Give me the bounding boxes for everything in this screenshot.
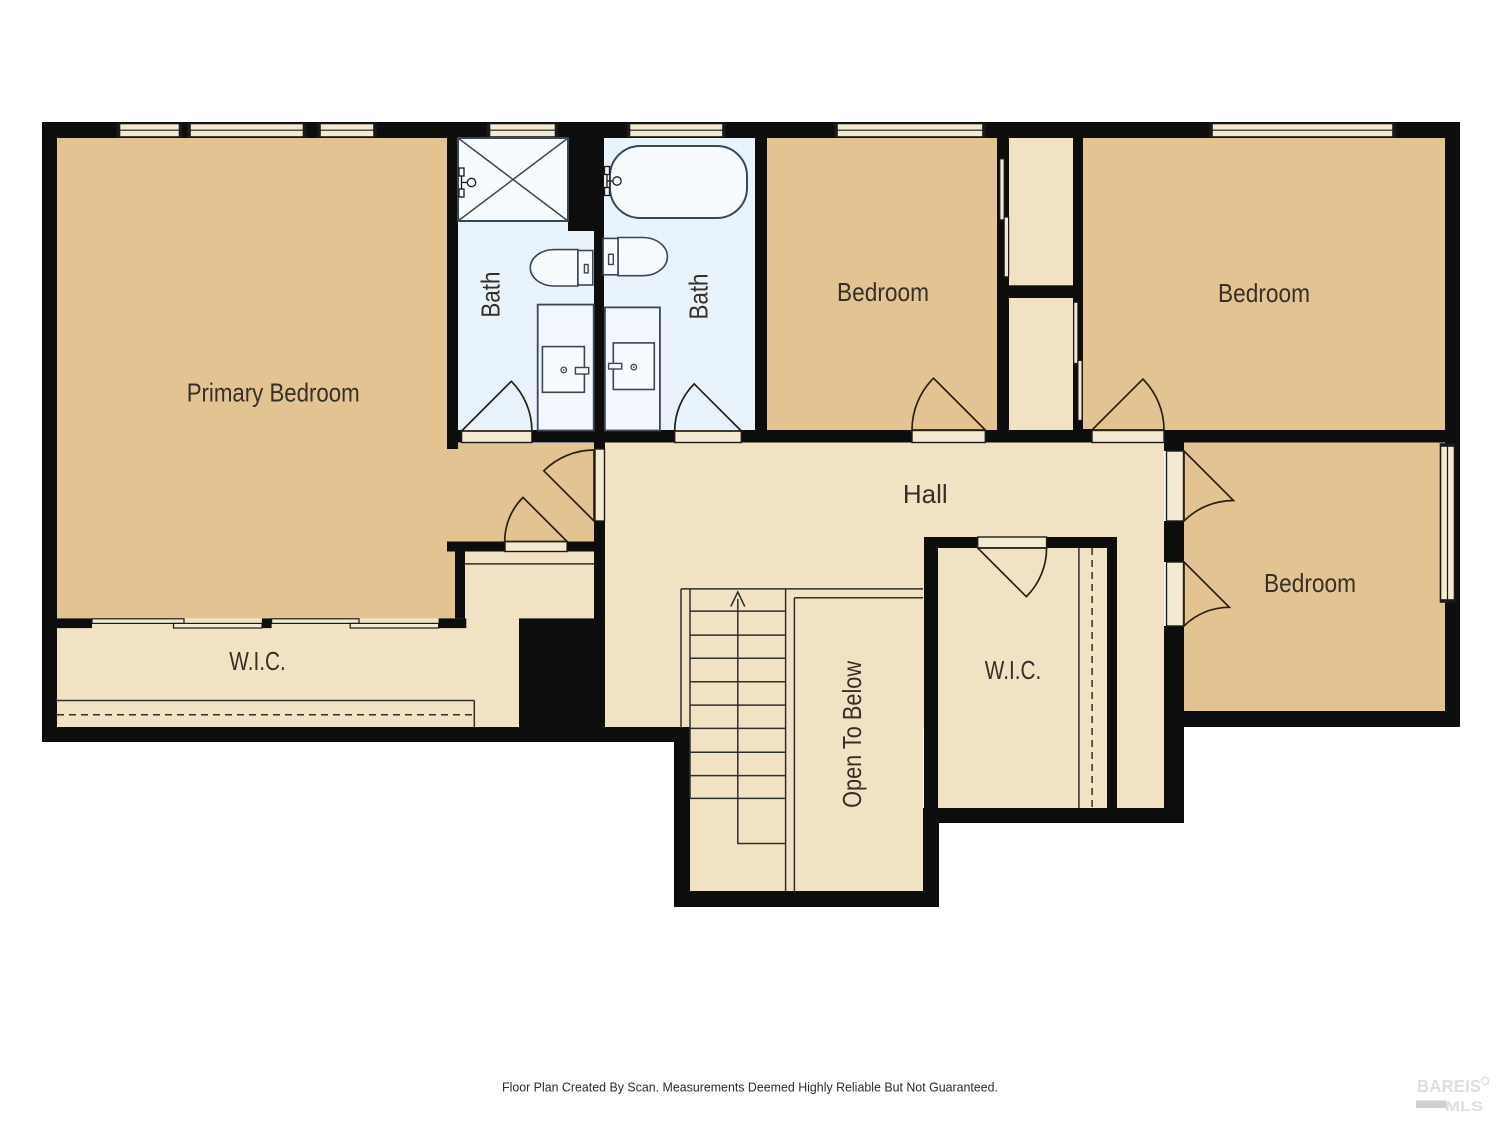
svg-text:Hall: Hall xyxy=(903,479,948,509)
svg-text:Primary Bedroom: Primary Bedroom xyxy=(187,378,360,408)
svg-text:Bedroom: Bedroom xyxy=(1264,568,1356,598)
svg-text:W.I.C.: W.I.C. xyxy=(229,646,286,676)
svg-text:Bedroom: Bedroom xyxy=(1218,278,1310,308)
svg-text:MLS: MLS xyxy=(1445,1099,1483,1114)
svg-text:Bedroom: Bedroom xyxy=(837,277,929,307)
svg-text:BAREIS: BAREIS xyxy=(1417,1076,1481,1096)
svg-text:Bath: Bath xyxy=(476,272,506,318)
svg-text:Bath: Bath xyxy=(684,274,714,320)
svg-text:Open To Below: Open To Below xyxy=(837,661,867,808)
svg-text:Floor Plan Created By Scan. Me: Floor Plan Created By Scan. Measurements… xyxy=(502,1080,998,1095)
svg-text:W.I.C.: W.I.C. xyxy=(985,655,1042,685)
